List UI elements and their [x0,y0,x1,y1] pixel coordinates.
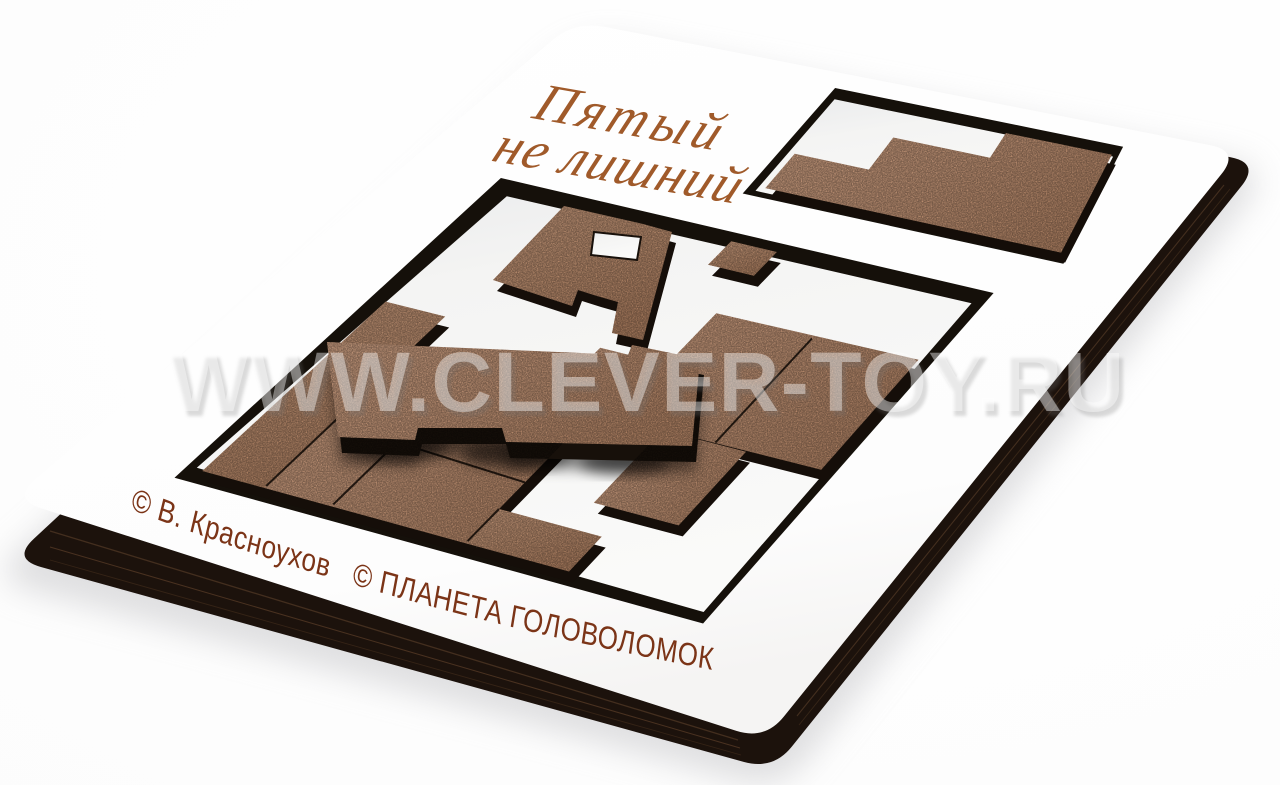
svg-text:WWW.CLEVER-TOY.RU: WWW.CLEVER-TOY.RU [169,335,1127,429]
